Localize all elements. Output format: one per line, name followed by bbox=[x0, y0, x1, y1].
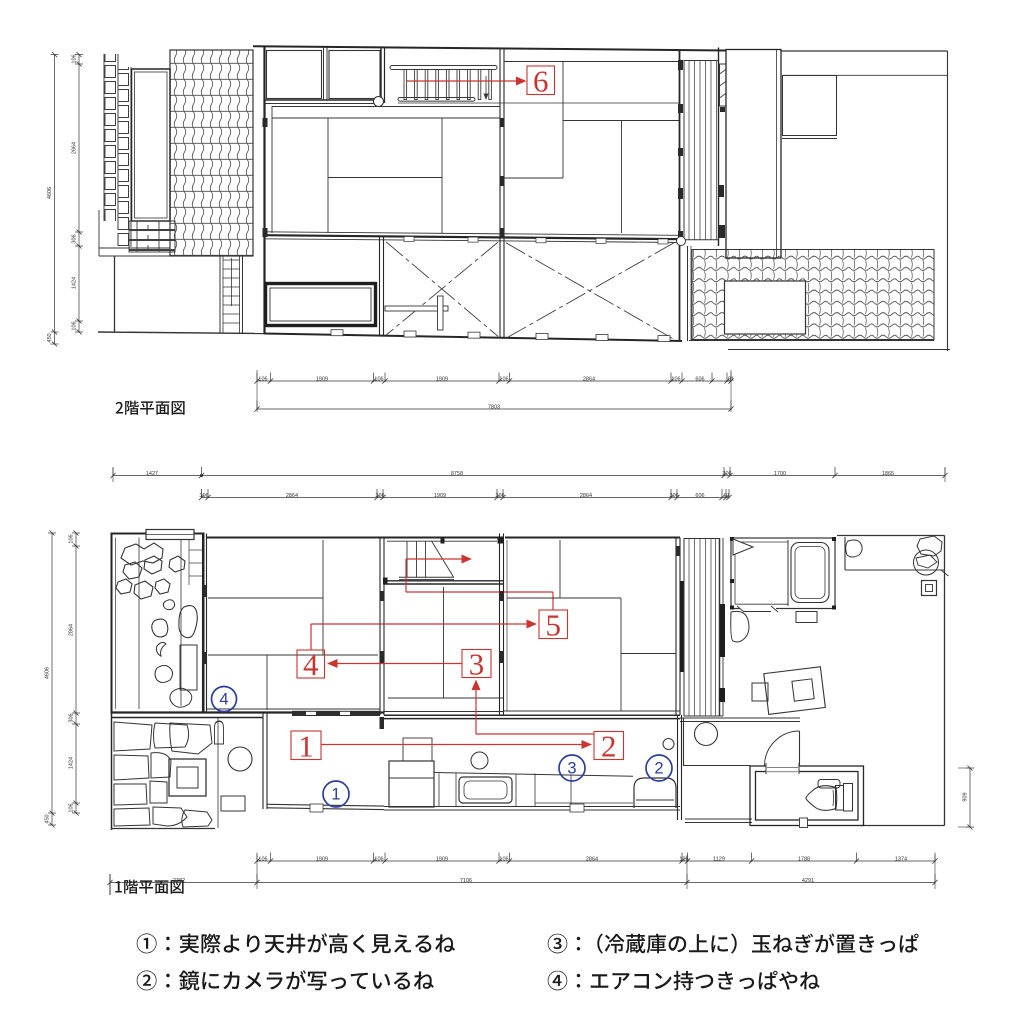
svg-text:91: 91 bbox=[724, 493, 730, 499]
svg-text:4: 4 bbox=[219, 691, 228, 709]
svg-text:450: 450 bbox=[45, 814, 51, 823]
svg-text:1909: 1909 bbox=[436, 376, 448, 382]
svg-text:106: 106 bbox=[72, 54, 78, 63]
svg-text:606: 606 bbox=[695, 493, 704, 499]
svg-text:8758: 8758 bbox=[451, 471, 463, 477]
svg-text:2864: 2864 bbox=[72, 142, 78, 154]
svg-text:4291: 4291 bbox=[802, 878, 814, 884]
svg-text:2864: 2864 bbox=[69, 624, 75, 636]
svg-text:106: 106 bbox=[72, 321, 78, 330]
svg-text:306: 306 bbox=[69, 713, 75, 722]
svg-text:2864: 2864 bbox=[583, 376, 595, 382]
svg-text:4606: 4606 bbox=[47, 187, 53, 199]
svg-text:306: 306 bbox=[375, 493, 384, 499]
svg-text:2864: 2864 bbox=[580, 493, 592, 499]
svg-text:306: 306 bbox=[72, 234, 78, 243]
svg-text:106: 106 bbox=[374, 376, 383, 382]
svg-text:106: 106 bbox=[69, 534, 75, 543]
svg-text:6: 6 bbox=[533, 64, 549, 99]
svg-text:1129: 1129 bbox=[713, 856, 725, 862]
svg-text:1909: 1909 bbox=[436, 856, 448, 862]
svg-text:4: 4 bbox=[303, 647, 319, 682]
svg-text:1424: 1424 bbox=[69, 757, 75, 769]
svg-text:1865: 1865 bbox=[882, 471, 894, 477]
svg-text:3: 3 bbox=[567, 760, 576, 778]
svg-text:4606: 4606 bbox=[45, 667, 51, 679]
svg-text:1909: 1909 bbox=[316, 376, 328, 382]
svg-text:1700: 1700 bbox=[774, 471, 786, 477]
svg-text:7803: 7803 bbox=[488, 404, 500, 410]
svg-text:106: 106 bbox=[671, 376, 680, 382]
svg-text:106: 106 bbox=[374, 856, 383, 862]
svg-text:106: 106 bbox=[499, 856, 508, 862]
svg-text:7106: 7106 bbox=[460, 878, 472, 884]
svg-text:106: 106 bbox=[69, 803, 75, 812]
svg-text:2: 2 bbox=[654, 760, 663, 778]
svg-text:3: 3 bbox=[469, 647, 485, 682]
svg-text:1: 1 bbox=[331, 786, 340, 804]
svg-text:450: 450 bbox=[47, 333, 53, 342]
svg-text:909: 909 bbox=[963, 792, 969, 801]
svg-text:1909: 1909 bbox=[434, 493, 446, 499]
svg-text:306: 306 bbox=[722, 471, 731, 477]
svg-text:306: 306 bbox=[199, 493, 208, 499]
svg-text:1788: 1788 bbox=[798, 856, 810, 862]
svg-text:1427: 1427 bbox=[146, 471, 158, 477]
svg-text:1374: 1374 bbox=[895, 856, 907, 862]
svg-text:106: 106 bbox=[258, 376, 267, 382]
svg-text:306: 306 bbox=[669, 493, 678, 499]
svg-text:306: 306 bbox=[495, 493, 504, 499]
svg-text:1909: 1909 bbox=[316, 856, 328, 862]
svg-text:1: 1 bbox=[298, 729, 314, 764]
svg-text:106: 106 bbox=[499, 376, 508, 382]
svg-text:2864: 2864 bbox=[286, 493, 298, 499]
svg-text:1424: 1424 bbox=[72, 277, 78, 289]
svg-text:5: 5 bbox=[546, 608, 562, 643]
svg-text:106: 106 bbox=[258, 856, 267, 862]
svg-text:2864: 2864 bbox=[586, 856, 598, 862]
svg-text:2: 2 bbox=[601, 729, 617, 764]
svg-text:606: 606 bbox=[695, 376, 704, 382]
